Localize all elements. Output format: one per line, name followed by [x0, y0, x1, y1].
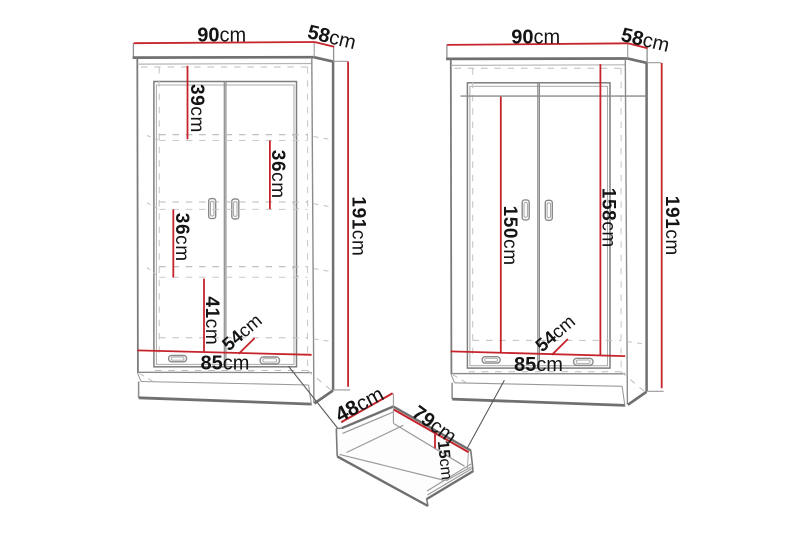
svg-text:85cm: 85cm [514, 354, 563, 376]
svg-text:90cm: 90cm [197, 24, 246, 46]
svg-text:85cm: 85cm [201, 352, 250, 374]
svg-text:150cm: 150cm [499, 206, 520, 266]
svg-text:191cm: 191cm [348, 196, 369, 256]
svg-text:36cm: 36cm [171, 213, 192, 262]
svg-text:90cm: 90cm [511, 26, 560, 48]
svg-text:158cm: 158cm [597, 188, 618, 248]
svg-text:39cm: 39cm [186, 84, 207, 133]
svg-text:191cm: 191cm [661, 196, 682, 256]
svg-text:36cm: 36cm [267, 150, 288, 199]
